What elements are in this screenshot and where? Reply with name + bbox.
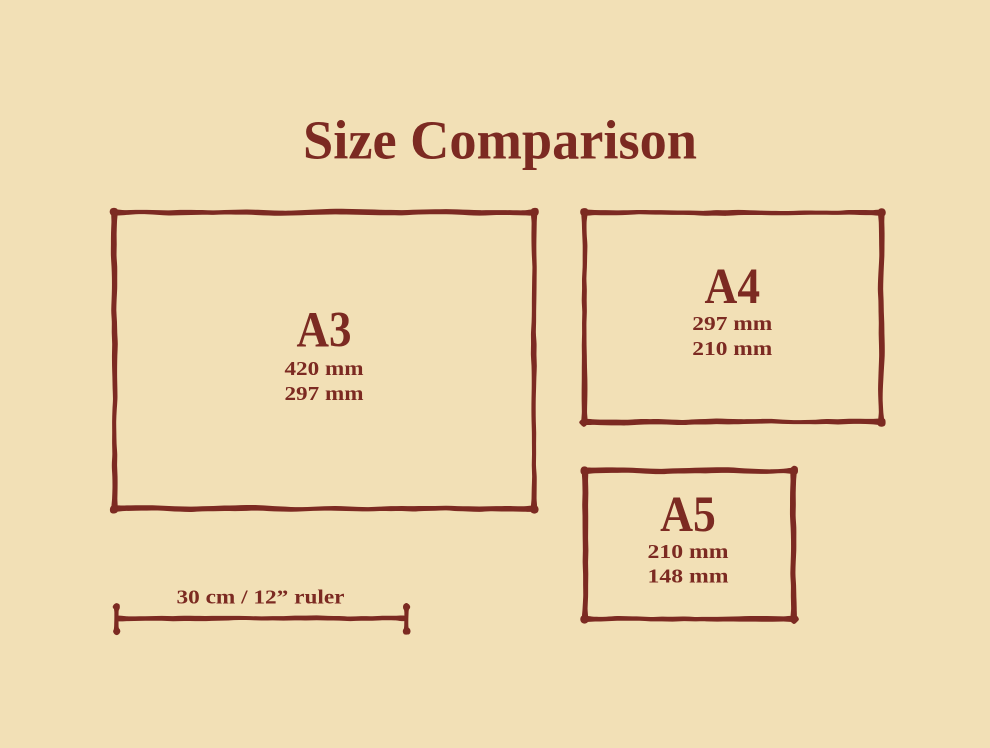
svg-text:420 mm: 420 mm [285,358,364,380]
svg-text:A5: A5 [660,487,716,543]
svg-text:A4: A4 [705,258,761,314]
svg-text:A3: A3 [297,302,352,358]
svg-text:Size Comparison: Size Comparison [303,110,697,171]
svg-text:297 mm: 297 mm [285,383,364,405]
svg-text:210 mm: 210 mm [692,338,772,360]
svg-text:297 mm: 297 mm [692,313,772,335]
svg-text:148 mm: 148 mm [648,566,729,588]
svg-text:210 mm: 210 mm [648,541,729,563]
svg-text:30 cm / 12” ruler: 30 cm / 12” ruler [177,587,345,609]
